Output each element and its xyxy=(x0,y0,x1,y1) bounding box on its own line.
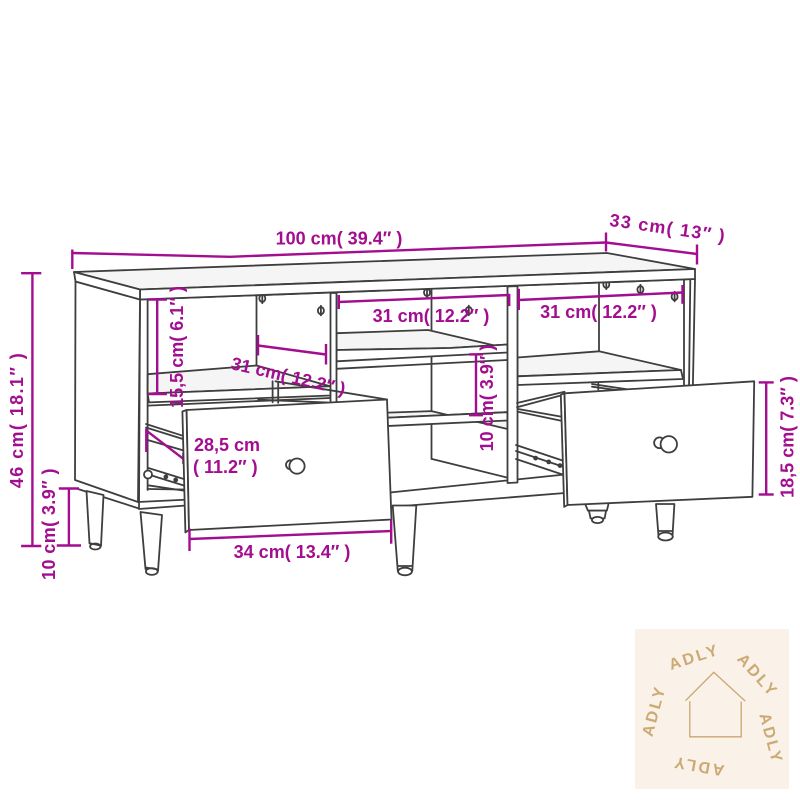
svg-text:28,5 cm: 28,5 cm xyxy=(194,435,260,455)
svg-text:46 cm( 18.1″ ): 46 cm( 18.1″ ) xyxy=(7,352,27,488)
svg-text:34 cm( 13.4″ ): 34 cm( 13.4″ ) xyxy=(234,542,351,562)
svg-text:100 cm( 39.4″ ): 100 cm( 39.4″ ) xyxy=(276,229,403,249)
svg-text:31 cm( 12.2″ ): 31 cm( 12.2″ ) xyxy=(373,306,490,326)
svg-text:10 cm( 3.9″ ): 10 cm( 3.9″ ) xyxy=(39,468,59,580)
svg-text:( 11.2″ ): ( 11.2″ ) xyxy=(193,457,258,477)
svg-text:10 cm( 3.9″ ): 10 cm( 3.9″ ) xyxy=(477,345,497,452)
svg-text:31 cm( 12.2″ ): 31 cm( 12.2″ ) xyxy=(540,302,657,322)
svg-text:15,5 cm( 6.1″ ): 15,5 cm( 6.1″ ) xyxy=(167,286,187,408)
svg-text:18,5 cm( 7.3″ ): 18,5 cm( 7.3″ ) xyxy=(778,376,798,498)
